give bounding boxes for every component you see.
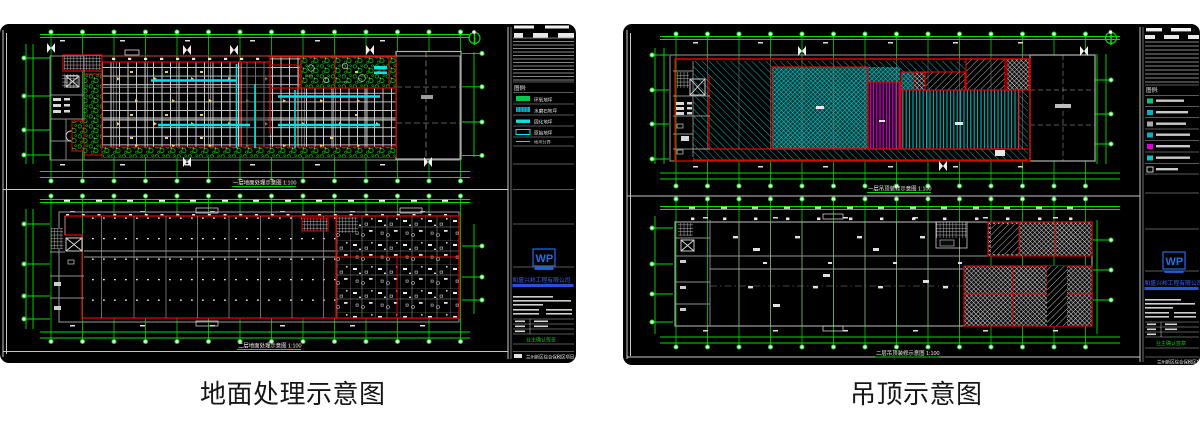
svg-text:原始地坪: 原始地坪 — [534, 130, 553, 137]
svg-text:WP: WP — [1166, 256, 1184, 268]
svg-text:图例:: 图例: — [514, 84, 527, 92]
svg-text:业主确认签章: 业主确认签章 — [526, 337, 556, 344]
svg-text:环氧地坪: 环氧地坪 — [534, 97, 553, 104]
svg-text:WP: WP — [536, 253, 554, 265]
svg-text:固化地坪: 固化地坪 — [534, 119, 553, 126]
svg-text:水磨石地坪: 水磨石地坪 — [534, 108, 557, 115]
svg-text:二层地面处理示意图 1:100: 二层地面处理示意图 1:100 — [238, 342, 302, 350]
svg-text:图例:: 图例: — [1146, 86, 1159, 94]
svg-text:和盛兴邦工程有限公司: 和盛兴邦工程有限公司 — [513, 276, 571, 284]
svg-text:一层吊顶装修示意图 1:100: 一层吊顶装修示意图 1:100 — [868, 185, 932, 193]
svg-text:一层地面处理示意图 1:100: 一层地面处理示意图 1:100 — [233, 178, 297, 186]
svg-text:二层吊顶装修示意图 1:100: 二层吊顶装修示意图 1:100 — [876, 349, 940, 357]
svg-text:地坪分界: 地坪分界 — [534, 139, 552, 146]
svg-text:兰州新区综合保税区项目: 兰州新区综合保税区项目 — [1157, 359, 1200, 366]
svg-text:兰州新区综合保税区项目: 兰州新区综合保税区项目 — [526, 354, 574, 361]
svg-text:和盛兴邦工程有限公司: 和盛兴邦工程有限公司 — [1145, 279, 1200, 287]
svg-text:业主确认签章: 业主确认签章 — [1156, 340, 1186, 347]
